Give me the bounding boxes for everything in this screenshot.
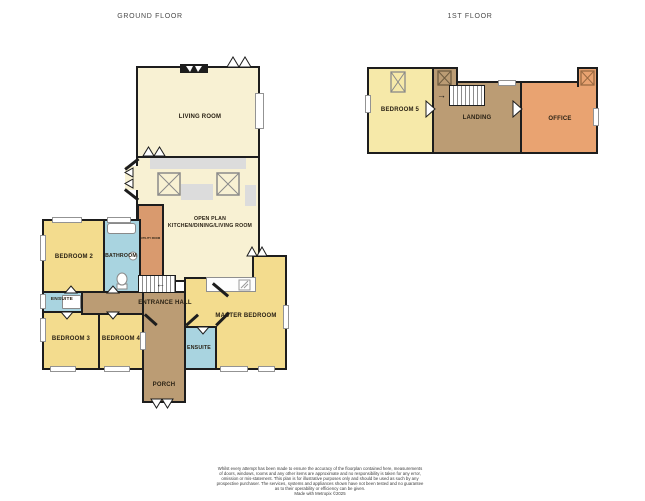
room-label-porch: PORCH xyxy=(142,382,186,388)
room-label-landing: LANDING xyxy=(437,115,517,121)
door-swing-icon xyxy=(106,311,120,320)
room-label-ensuite-left: ENSUITE xyxy=(42,298,82,303)
room-label-ensuite-master: ENSUITE xyxy=(176,346,222,351)
door-swing-icon xyxy=(124,167,134,189)
door-swing-icon xyxy=(60,311,74,320)
door-swing-icon xyxy=(226,56,252,68)
ground-floor-title: GROUND FLOOR xyxy=(105,13,195,20)
room-label-entrance-hall: ENTRANCE HALL xyxy=(100,300,230,306)
room-label-bedroom5: BEDROOM 5 xyxy=(369,107,431,113)
room-label-open-plan-1: OPEN PLAN xyxy=(145,217,275,222)
room-label-bathroom: BATHROOM xyxy=(100,254,142,259)
door-swing-icon xyxy=(246,246,268,257)
window xyxy=(255,93,264,129)
rooflight-icon xyxy=(157,172,181,196)
window xyxy=(52,217,82,223)
stairs-direction-arrow: ← xyxy=(156,280,165,289)
stairs-direction-arrow: → xyxy=(437,91,446,100)
kitchen-counter-top xyxy=(150,158,246,169)
chimney-notch-icon xyxy=(184,66,204,73)
window xyxy=(104,366,130,372)
window xyxy=(107,217,131,223)
room-label-open-plan-2: KITCHEN/DINING/LIVING ROOM xyxy=(145,224,275,229)
rooflight-icon xyxy=(216,172,240,196)
door-swing-icon xyxy=(106,285,120,294)
kitchen-counter-right xyxy=(245,185,256,206)
window xyxy=(258,366,275,372)
window xyxy=(220,366,248,372)
disclaimer: Whilst every attempt has been made to en… xyxy=(190,466,450,496)
room-label-office: OFFICE xyxy=(524,116,596,122)
room-label-living-room: LIVING ROOM xyxy=(150,114,250,120)
door-swing-icon xyxy=(142,146,166,157)
first-floor-title: 1ST FLOOR xyxy=(435,13,505,20)
door-swing-icon xyxy=(64,285,78,294)
kitchen-island xyxy=(181,184,213,200)
bathtub-icon xyxy=(107,223,136,234)
room-utility xyxy=(137,204,164,282)
room-label-utility: UTILITY ROOM xyxy=(137,238,164,241)
door-swing-icon xyxy=(150,398,174,409)
room-label-bedroom2: BEDROOM 2 xyxy=(44,254,104,260)
stairs-first xyxy=(449,85,485,106)
rooflight-icon xyxy=(390,71,406,93)
floorplan-page: GROUND FLOOR 1ST FLOOR UTILITY ROOM xyxy=(0,0,645,501)
rooflight-icon xyxy=(580,70,595,86)
room-label-bedroom3: BEDROOM 3 xyxy=(42,336,100,342)
window xyxy=(498,80,516,86)
room-label-master-bedroom: MASTER BEDROOM xyxy=(196,313,296,319)
door-swing-icon xyxy=(196,326,210,335)
room-master-bedroom-notch xyxy=(252,255,287,282)
room-label-bedroom4: BEDROOM 4 xyxy=(97,336,145,342)
disclaimer-line: Made with Metropix ©2025 xyxy=(190,491,450,496)
rooflight-icon xyxy=(437,70,452,86)
room-living-room xyxy=(136,66,260,158)
window xyxy=(50,366,76,372)
boiler-icon xyxy=(238,279,251,291)
